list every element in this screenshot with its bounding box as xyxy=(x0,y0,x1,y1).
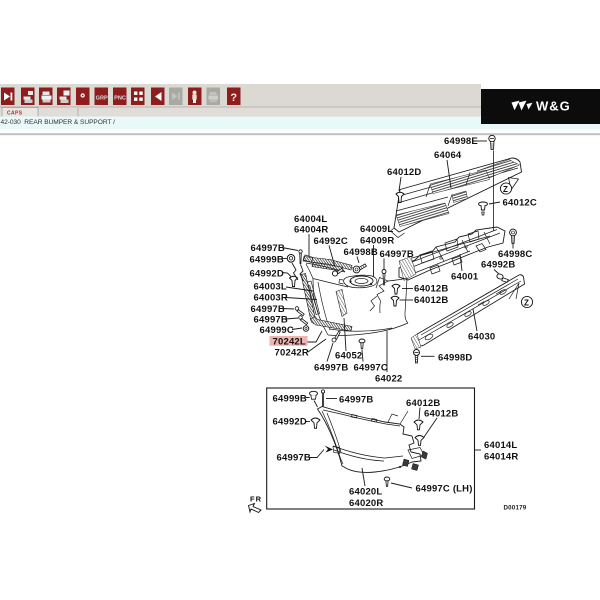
svg-text:64030: 64030 xyxy=(468,332,495,343)
svg-text:64997B: 64997B xyxy=(251,304,285,315)
svg-text:64997B: 64997B xyxy=(380,249,414,260)
svg-text:64997B: 64997B xyxy=(277,453,311,464)
svg-text:64999C: 64999C xyxy=(260,325,294,336)
svg-text:GRP: GRP xyxy=(96,96,108,102)
svg-text:D00179: D00179 xyxy=(504,505,527,512)
svg-text:64012B: 64012B xyxy=(424,409,458,420)
svg-text:64997B: 64997B xyxy=(251,243,285,254)
svg-text:64012D: 64012D xyxy=(387,167,421,178)
svg-text:Z: Z xyxy=(524,299,529,308)
svg-text:FR: FR xyxy=(250,495,262,504)
svg-text:64997B: 64997B xyxy=(339,395,373,406)
svg-text:64012B: 64012B xyxy=(414,284,448,295)
svg-text:64003R: 64003R xyxy=(254,293,288,304)
svg-text:64004L: 64004L xyxy=(294,214,327,225)
svg-text:42-030 REAR BUMPER & SUPPORT: 42-030 REAR BUMPER & SUPPORT / xyxy=(1,119,116,126)
svg-text:64001: 64001 xyxy=(451,272,479,283)
svg-text:70242L: 70242L xyxy=(273,336,306,347)
svg-text:64003L: 64003L xyxy=(254,282,287,293)
svg-text:64999B: 64999B xyxy=(273,394,307,405)
svg-text:64997B: 64997B xyxy=(254,315,288,326)
svg-text:W&G: W&G xyxy=(536,99,571,114)
svg-text:64992C: 64992C xyxy=(314,236,348,247)
svg-text:64997B: 64997B xyxy=(314,363,348,374)
svg-text:64998C: 64998C xyxy=(498,249,532,260)
svg-text:64020R: 64020R xyxy=(349,498,383,509)
svg-text:64998B: 64998B xyxy=(344,247,378,258)
svg-text:64014L: 64014L xyxy=(484,440,517,451)
svg-text:64998E: 64998E xyxy=(444,136,478,147)
svg-text:64012B: 64012B xyxy=(414,295,448,306)
svg-text:64064: 64064 xyxy=(434,150,462,161)
svg-text:64992D: 64992D xyxy=(250,269,284,280)
svg-text:?: ? xyxy=(230,92,237,104)
svg-text:64012C: 64012C xyxy=(503,198,537,209)
svg-text:64009L: 64009L xyxy=(360,224,393,235)
svg-text:64997C: 64997C xyxy=(354,363,388,374)
svg-text:64014R: 64014R xyxy=(484,452,518,463)
svg-text:64009R: 64009R xyxy=(360,236,394,247)
svg-text:64052: 64052 xyxy=(335,351,362,362)
svg-text:CAPS: CAPS xyxy=(7,111,23,117)
svg-text:64012B: 64012B xyxy=(406,398,440,409)
svg-text:70242R: 70242R xyxy=(275,348,309,359)
svg-text:64999B: 64999B xyxy=(250,255,284,266)
svg-text:64997C (LH): 64997C (LH) xyxy=(416,484,473,495)
svg-text:64022: 64022 xyxy=(375,374,402,385)
svg-text:64004R: 64004R xyxy=(294,225,328,236)
svg-text:64998D: 64998D xyxy=(438,353,472,364)
svg-text:64992D: 64992D xyxy=(273,417,307,428)
svg-text:64020L: 64020L xyxy=(349,487,382,498)
svg-text:64992B: 64992B xyxy=(481,260,515,271)
svg-text:Z: Z xyxy=(503,185,508,194)
svg-text:PNC: PNC xyxy=(114,96,126,102)
